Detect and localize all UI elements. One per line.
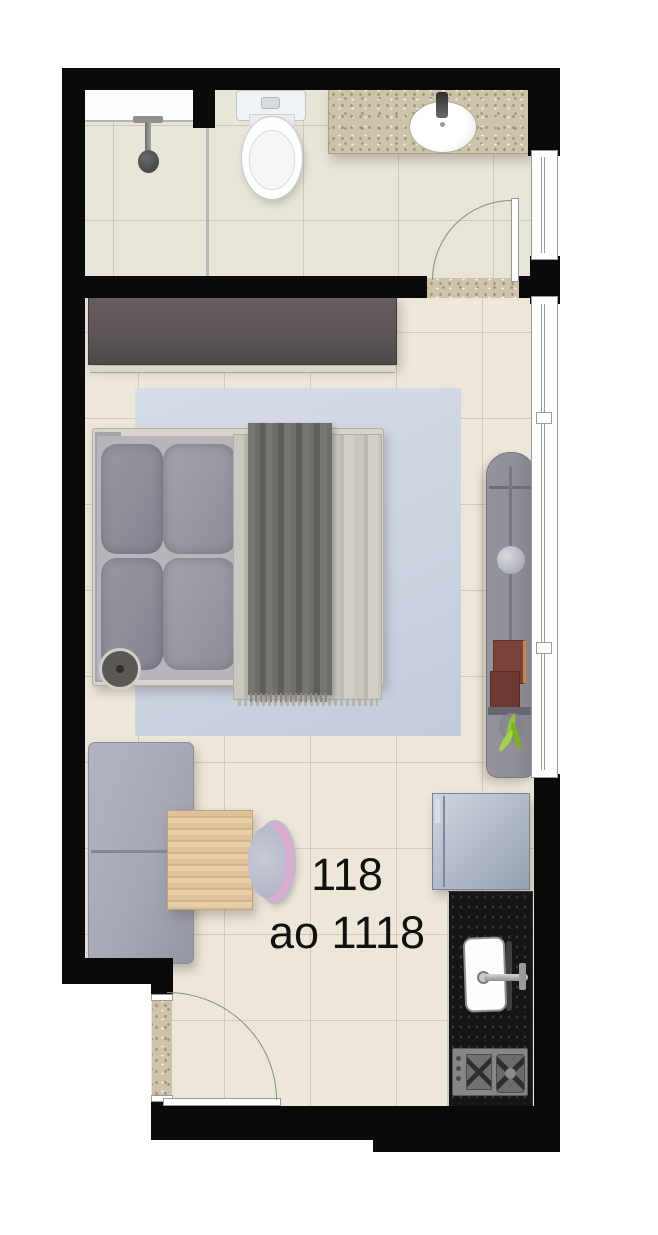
bedroom-window-glass [541, 304, 545, 770]
pillow [163, 558, 236, 670]
floor-plan: 118 ao 1118 [0, 0, 658, 1235]
cooktop-knob [456, 1066, 461, 1071]
cooktop-knob [456, 1056, 461, 1061]
exterior-cutout [0, 984, 151, 1235]
desk-stool [497, 546, 525, 574]
burner-icon [496, 1054, 525, 1093]
desk-chair-seat [490, 671, 520, 711]
wall-top [62, 68, 560, 90]
wall-entry-top-stub [151, 958, 173, 996]
shower-glass-partition [206, 124, 209, 278]
pillow [163, 444, 236, 554]
unit-label: 118 ao 1118 [237, 846, 457, 962]
wall-top-right [528, 68, 560, 156]
wall-step-bottom-left [62, 958, 155, 984]
refrigerator-handle [435, 799, 440, 823]
bathroom-window-glass [541, 157, 545, 253]
bed-throw [248, 423, 332, 695]
wardrobe [88, 295, 397, 365]
vanity-faucet-icon [436, 92, 448, 118]
shower-head-icon [138, 150, 159, 173]
wardrobe-sliding-track [90, 366, 395, 373]
cooktop-knob [456, 1076, 461, 1081]
burner-icon [466, 1054, 492, 1090]
wall-bottom-right [373, 1106, 560, 1152]
wall-shower-stub [193, 88, 215, 128]
faucet-tap [519, 963, 526, 990]
refrigerator-door-line [443, 796, 445, 887]
window-mullion [536, 412, 552, 424]
bathroom-door-leaf [511, 198, 519, 282]
bathroom-door-threshold [427, 278, 520, 298]
bed-throw-fringe [250, 693, 330, 702]
unit-label-line1: 118 [237, 846, 457, 904]
unit-label-line2: ao 1118 [237, 904, 457, 962]
window-mullion [536, 642, 552, 654]
refrigerator [432, 793, 530, 890]
wall-bath-divider [62, 276, 427, 298]
wall-right-bottom [534, 774, 560, 1152]
toilet-seat [249, 130, 295, 190]
pillow [101, 444, 163, 554]
wall-bottom [151, 1106, 373, 1140]
toilet-flush-button [261, 97, 280, 109]
vanity-drain [440, 122, 445, 127]
bedside-lamp-dot [116, 665, 124, 673]
wall-left [62, 68, 85, 982]
